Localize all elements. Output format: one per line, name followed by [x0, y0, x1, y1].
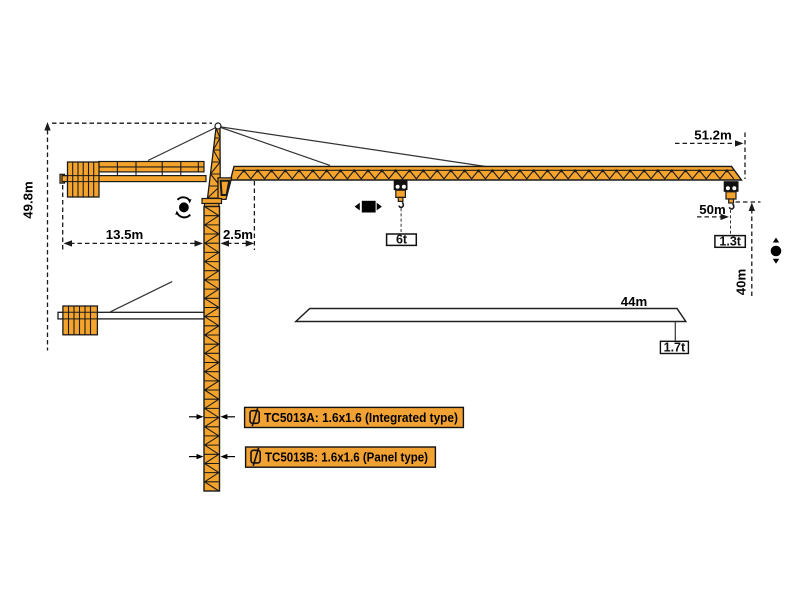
svg-text:2.5m: 2.5m [223, 227, 253, 242]
svg-text:13.5m: 13.5m [106, 227, 143, 242]
svg-text:51.2m: 51.2m [694, 128, 731, 143]
svg-text:40m: 40m [734, 269, 749, 295]
svg-text:TC5013B: 1.6x1.6 (Panel type: TC5013B: 1.6x1.6 (Panel type) [265, 450, 428, 465]
svg-text:49.8m: 49.8m [21, 181, 36, 218]
svg-text:TC5013A: 1.6x1.6 (Integrated: TC5013A: 1.6x1.6 (Integrated type) [264, 410, 458, 425]
svg-text:6t: 6t [396, 233, 408, 247]
svg-text:44m: 44m [621, 294, 647, 309]
svg-text:1.7t: 1.7t [664, 340, 686, 354]
svg-text:1.3t: 1.3t [719, 234, 741, 248]
